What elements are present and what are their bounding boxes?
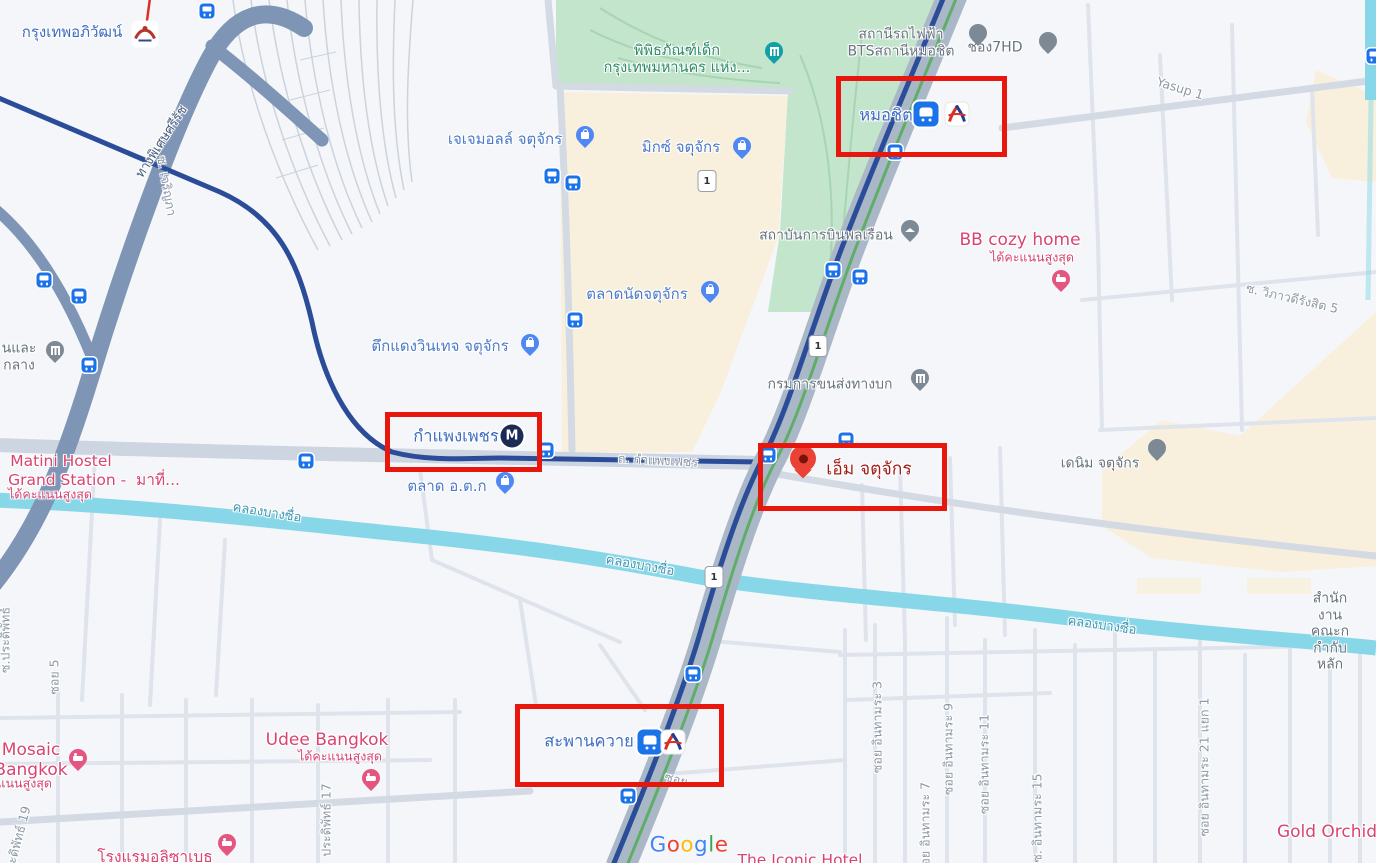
label-mixt-chatuchak[interactable]: มิกซ์ จตุจักร	[642, 139, 720, 157]
bus-stop-icon[interactable]	[853, 270, 868, 285]
mosaic-bangkok-pin-icon[interactable]	[69, 749, 87, 771]
bus-stop-icon[interactable]	[826, 263, 841, 278]
dept-land-transport-pin-icon[interactable]	[911, 369, 929, 391]
bus-stop-icon[interactable]	[37, 273, 52, 288]
label-mosaic-bangkok-rating: ได้คะแนนสูงสุด	[0, 777, 52, 792]
annotation-box-kamphaeng-phet	[385, 412, 542, 472]
tuk-daeng-pin-icon[interactable]	[521, 334, 539, 356]
label-children-museum[interactable]: พิพิธภัณฑ์เด็ก กรุงเทพมหานคร แห่ง...	[604, 43, 751, 77]
label-soi-inthamara-11: ซอย อินทามระ 11	[978, 714, 993, 814]
label-bb-cozy-home[interactable]: BB cozy home	[959, 230, 1080, 250]
label-the-iconic-hotel[interactable]: The Iconic Hotel	[738, 851, 863, 863]
channel-7hd-pin-icon[interactable]	[1039, 32, 1057, 54]
google-logo-letter: g	[694, 833, 708, 858]
annotation-box-saphan-khwai	[515, 704, 724, 787]
label-soi-5: ซอย 5	[48, 659, 63, 694]
label-sec-office-truncated[interactable]: สำนักงานคณะก กำกับหลัก	[1307, 591, 1353, 674]
google-logo-letter: o	[667, 833, 681, 858]
bb-cozy-home-pin-icon[interactable]	[1052, 270, 1070, 292]
bus-stop-icon[interactable]	[568, 313, 583, 328]
bus-stop-icon[interactable]	[72, 289, 87, 304]
label-bb-cozy-home-rating: ได้คะแนนสูงสุด	[990, 251, 1074, 266]
chatuchak-market-pin-icon[interactable]	[701, 281, 719, 303]
denim-chatuchak-pin-icon[interactable]	[1148, 439, 1166, 461]
bus-stop-icon[interactable]	[686, 667, 701, 682]
route-1-shield: 1	[698, 170, 717, 192]
bts-mochit-poi-pin-icon[interactable]	[969, 24, 987, 46]
map-canvas[interactable]: Google กรุงเทพอภิวัฒน์สถานีรถไฟฟ้า BTSสถ…	[0, 0, 1376, 863]
label-soi-pradipat-left: ซ.ประดิพัทธ์	[0, 607, 13, 673]
google-logo-letter: o	[680, 833, 694, 858]
bus-stop-icon[interactable]	[566, 176, 581, 191]
label-elizabeth-hotel[interactable]: โรงแรมอลิซาเบธ	[97, 848, 212, 863]
label-or-tor-kor-market[interactable]: ตลาด อ.ต.ก	[407, 478, 486, 496]
children-museum-pin-icon[interactable]	[765, 42, 783, 64]
bank-pin-icon[interactable]	[46, 341, 64, 363]
label-mosaic-bangkok[interactable]: Mosaic Bangkok	[0, 740, 68, 780]
bus-stop-icon[interactable]	[200, 4, 215, 19]
route-1-shield: 1	[809, 335, 828, 357]
krung-thep-aphiwat-srt-logo[interactable]	[132, 21, 159, 48]
label-soi-inthamara-15: ซ. อินทามระ 15	[1031, 773, 1046, 862]
bus-stop-icon[interactable]	[545, 169, 560, 184]
mixt-chatuchak-pin-icon[interactable]	[733, 137, 751, 159]
label-gold-orchid[interactable]: Gold Orchid	[1277, 822, 1376, 842]
label-soi-inthamara-21-yaek-1: ซอย อินทามระ 21 แยก 1	[1198, 698, 1213, 837]
bus-stop-icon[interactable]	[621, 789, 636, 804]
label-pradipat-17: ประดิพัทธ์ 17	[320, 783, 335, 856]
label-udee-bangkok-rating: ได้คะแนนสูงสุด	[298, 750, 382, 765]
bus-stop-icon[interactable]	[1367, 49, 1376, 64]
google-logo-letter: e	[715, 833, 729, 858]
or-tor-kor-pin-icon[interactable]	[496, 472, 514, 494]
udee-bangkok-pin-icon[interactable]	[362, 769, 380, 791]
jj-mall-pin-icon[interactable]	[576, 126, 594, 148]
label-denim-chatuchak[interactable]: เดนิม จตุจักร	[1061, 456, 1140, 473]
label-krung-thep-aphiwat-station[interactable]: กรุงเทพอภิวัฒน์	[22, 24, 123, 42]
google-logo: Google	[650, 833, 729, 858]
label-jj-mall[interactable]: เจเจมอลล์ จตุจักร	[448, 131, 562, 149]
annotation-box-mochit	[836, 76, 1007, 157]
label-matini-hostel-line1[interactable]: Matini Hostel	[10, 452, 111, 470]
google-logo-letter: G	[650, 833, 667, 858]
route-1-shield: 1	[705, 566, 724, 588]
elizabeth-hotel-pin-icon[interactable]	[218, 834, 236, 856]
label-soi-inthamara-3: ซอย อินทามระ 3	[871, 681, 886, 773]
label-bts-mochit-station-poi[interactable]: สถานีรถไฟฟ้า BTSสถานีหมอชิต	[848, 26, 955, 59]
label-tuk-daeng-vintage[interactable]: ตึกแดงวินเทจ จตุจักร	[371, 338, 508, 356]
label-bank-truncated: นและ กลาง	[2, 340, 37, 373]
label-soi-inthamara-7: ซอย อินทามระ 7	[919, 782, 934, 863]
label-dept-land-transport[interactable]: กรมการขนส่งทางบก	[768, 377, 893, 394]
civil-aviation-pin-icon[interactable]	[901, 220, 919, 242]
label-chatuchak-weekend-market[interactable]: ตลาดนัดจตุจักร	[586, 286, 688, 304]
bus-stop-icon[interactable]	[82, 358, 97, 373]
label-matini-hostel-rating: ได้คะแนนสูงสุด	[8, 488, 92, 503]
label-udee-bangkok[interactable]: Udee Bangkok	[266, 730, 389, 750]
label-soi-inthamara-9: ซอย อินทามระ 9	[942, 703, 957, 795]
label-civil-aviation-institute[interactable]: สถาบันการบินพลเรือน	[759, 228, 893, 245]
bus-stop-icon[interactable]	[299, 454, 314, 469]
annotation-box-m-chatuchak	[758, 443, 947, 511]
